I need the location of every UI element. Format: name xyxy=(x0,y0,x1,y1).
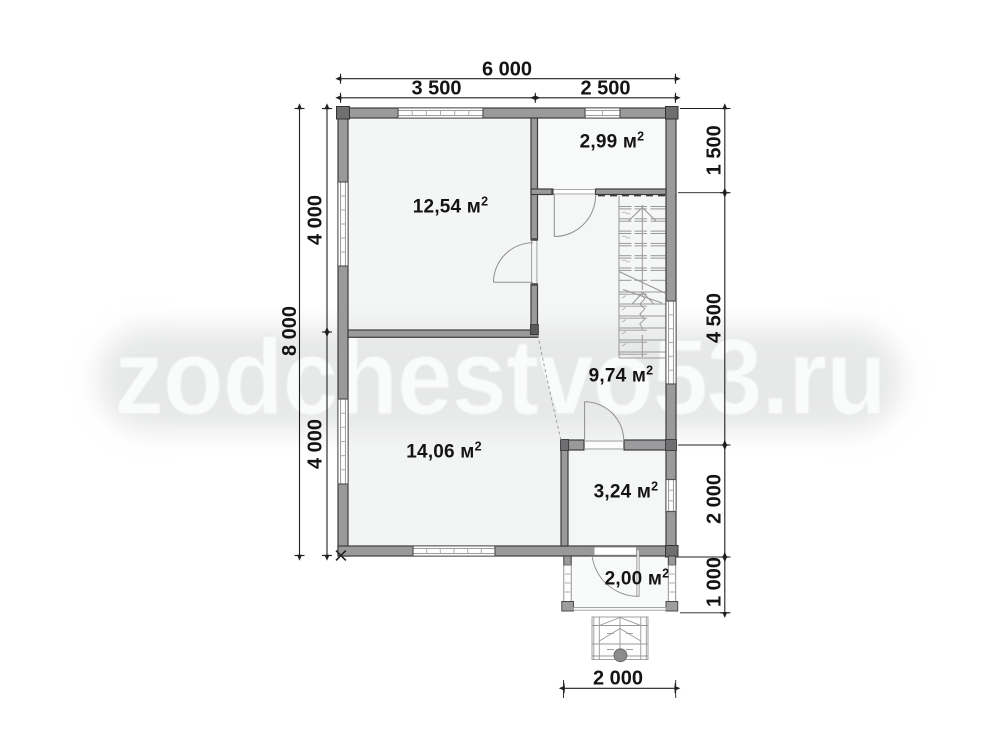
svg-text:1 000: 1 000 xyxy=(704,557,726,607)
svg-text:2 000: 2 000 xyxy=(704,474,726,524)
svg-text:2,00 м2: 2,00 м2 xyxy=(605,567,670,590)
svg-text:3,24 м2: 3,24 м2 xyxy=(594,480,659,503)
svg-text:4 000: 4 000 xyxy=(305,195,327,245)
svg-text:2,99 м2: 2,99 м2 xyxy=(580,130,645,153)
svg-text:6 000: 6 000 xyxy=(482,58,532,80)
svg-text:1 500: 1 500 xyxy=(704,125,726,175)
svg-text:2 500: 2 500 xyxy=(580,78,630,100)
svg-text:3 500: 3 500 xyxy=(411,78,461,100)
svg-text:4 000: 4 000 xyxy=(305,419,327,469)
svg-text:2 000: 2 000 xyxy=(593,668,643,690)
svg-text:9,74 м2: 9,74 м2 xyxy=(589,364,654,387)
svg-text:14,06 м2: 14,06 м2 xyxy=(406,440,481,463)
svg-text:12,54 м2: 12,54 м2 xyxy=(413,195,488,218)
svg-text:4 500: 4 500 xyxy=(704,293,726,343)
svg-text:8 000: 8 000 xyxy=(279,306,301,356)
